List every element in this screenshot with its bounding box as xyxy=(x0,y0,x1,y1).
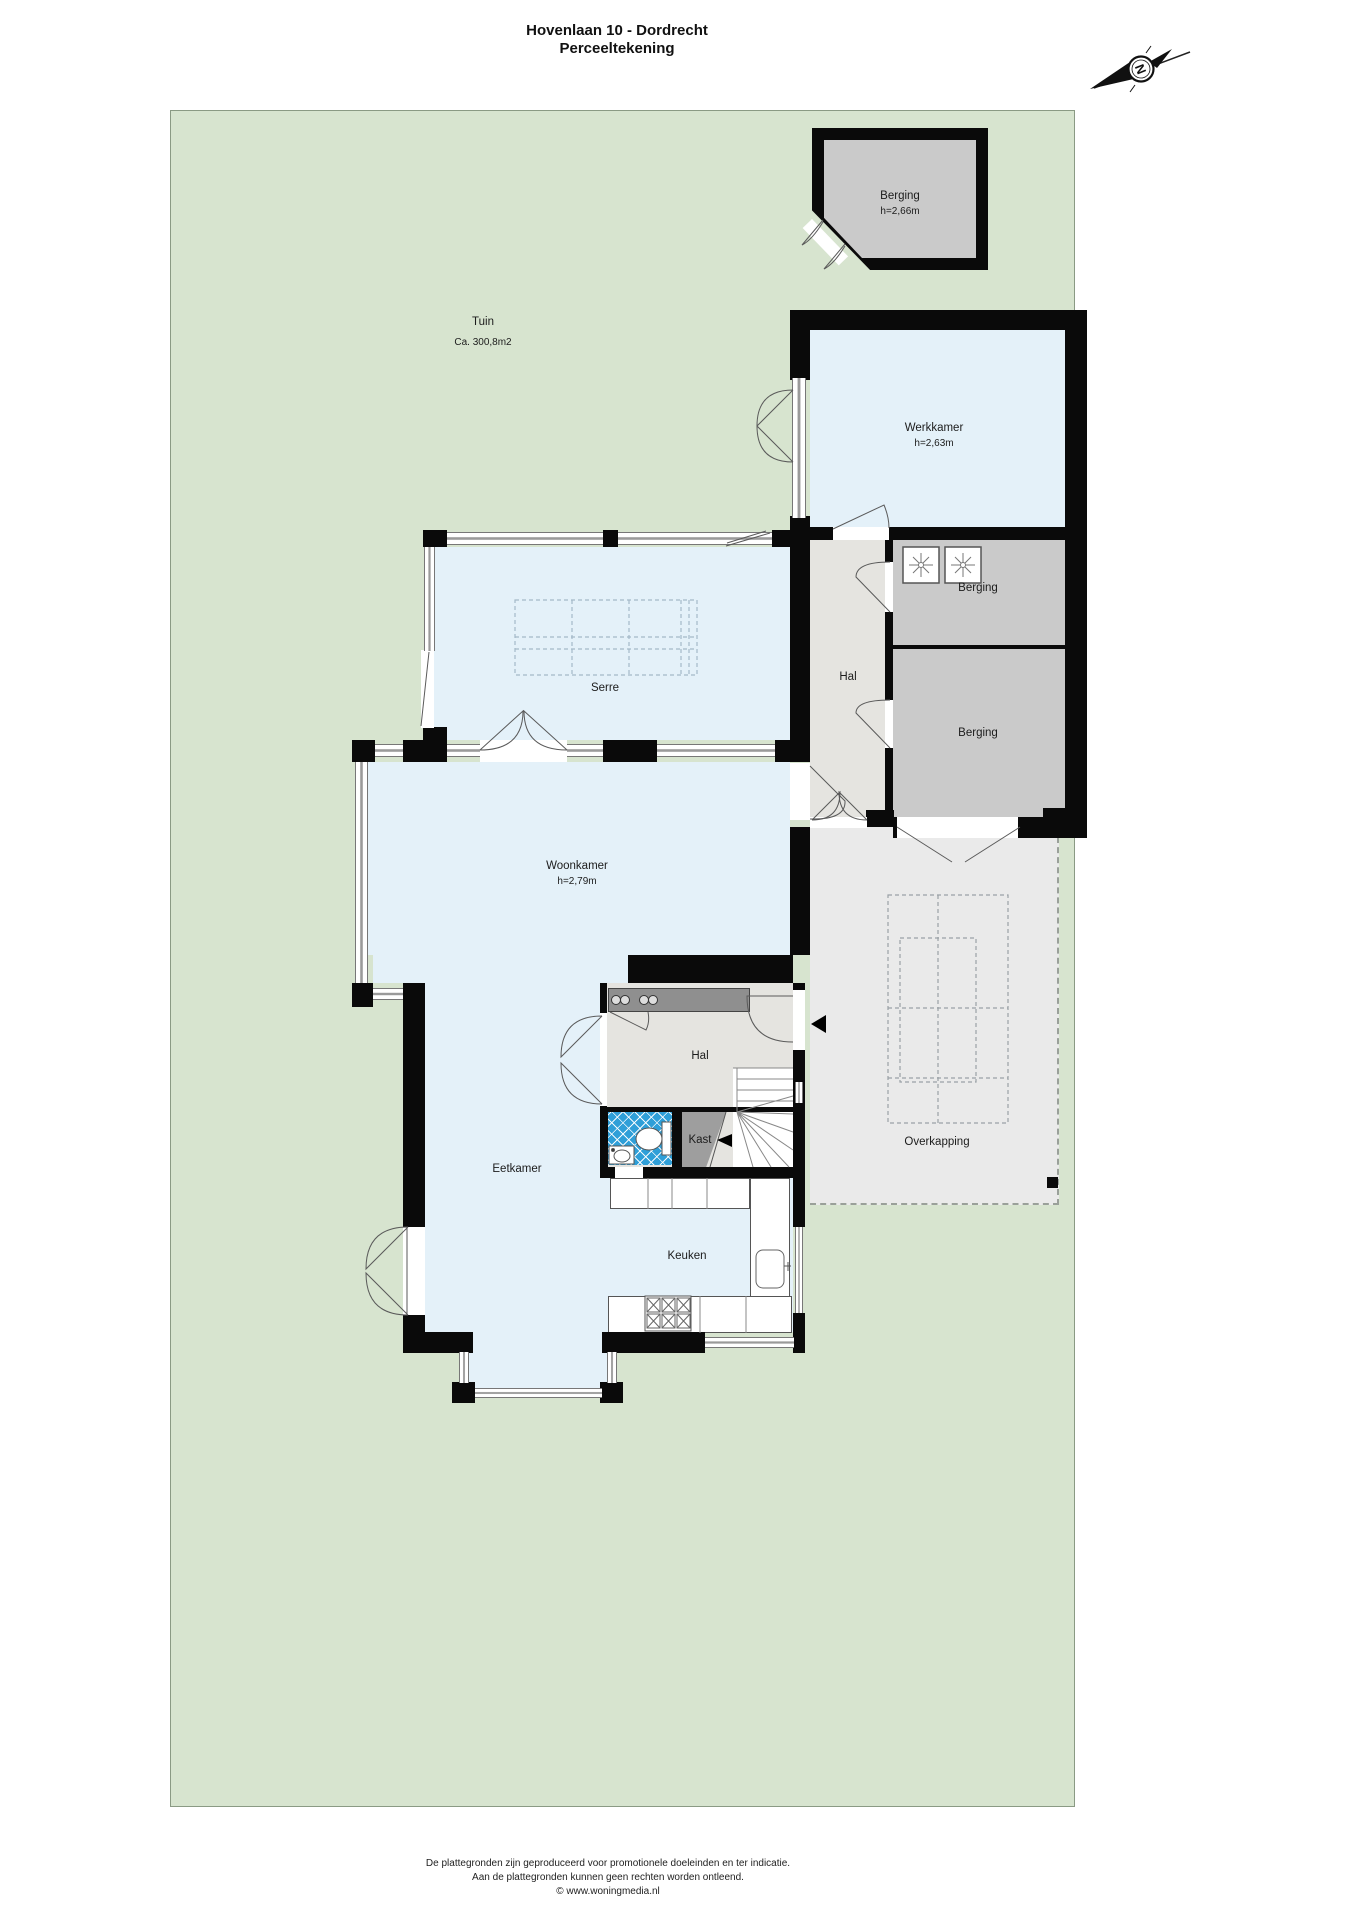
wall-segment xyxy=(790,530,810,762)
wall-segment xyxy=(403,1332,473,1353)
label-woonkamer-h: h=2,79m xyxy=(557,875,596,889)
window xyxy=(475,1388,602,1398)
wall-segment xyxy=(772,530,810,547)
window xyxy=(459,1352,469,1383)
label-eetkamer: Eetkamer xyxy=(492,1162,541,1176)
wall-segment xyxy=(403,983,425,1227)
wall-segment xyxy=(866,810,894,827)
window xyxy=(373,988,403,1000)
wall-segment xyxy=(793,1313,805,1353)
wall-segment xyxy=(628,955,793,983)
wall-segment xyxy=(893,645,1065,649)
window xyxy=(567,744,603,757)
room-woonkamer-ext xyxy=(373,955,628,983)
door-opening xyxy=(885,700,893,748)
door-opening xyxy=(600,1013,607,1106)
wall-segment xyxy=(602,1332,705,1353)
label-kast: Kast xyxy=(688,1133,711,1147)
window xyxy=(447,744,480,757)
overkapping-post xyxy=(1047,1177,1058,1188)
door-opening xyxy=(480,740,567,762)
room-eetkamer-bay xyxy=(466,1353,610,1389)
window xyxy=(618,532,772,545)
wall-segment xyxy=(452,1382,475,1403)
label-werkkamer-h: h=2,63m xyxy=(914,437,953,451)
door-opening xyxy=(790,763,810,820)
window xyxy=(795,1082,803,1103)
label-berging-tuin-h: h=2,66m xyxy=(880,205,919,219)
label-keuken: Keuken xyxy=(667,1249,706,1263)
label-berging-tuin: Berging xyxy=(880,189,920,203)
wall-segment xyxy=(793,1167,805,1227)
door-opening xyxy=(403,1227,425,1315)
window xyxy=(792,378,806,518)
page-subtitle: Perceeltekening xyxy=(559,40,674,57)
label-berging-was: Berging xyxy=(958,581,998,595)
door-opening xyxy=(421,650,434,728)
label-berging-2: Berging xyxy=(958,726,998,740)
compass-letter: N xyxy=(1132,62,1149,76)
label-woonkamer: Woonkamer xyxy=(546,859,608,873)
page-title: Hovenlaan 10 - Dordrecht xyxy=(526,22,708,39)
window xyxy=(607,1352,617,1383)
stairwell xyxy=(733,1068,793,1167)
hall-sideboard xyxy=(608,988,750,1012)
wall-segment xyxy=(1065,310,1087,838)
door-opening xyxy=(793,990,805,1050)
label-overkapping: Overkapping xyxy=(904,1135,969,1149)
wall-segment xyxy=(352,983,373,1007)
wall-segment xyxy=(793,1050,805,1167)
wall-segment xyxy=(423,530,447,547)
wall-segment xyxy=(790,310,1087,330)
kitchen-counter-north xyxy=(610,1178,750,1209)
room-serre xyxy=(433,547,790,740)
window xyxy=(795,1227,803,1313)
footer-disclaimer-2: Aan de plattegronden kunnen geen rechten… xyxy=(472,1871,744,1885)
label-werkkamer: Werkkamer xyxy=(905,421,964,435)
door-opening xyxy=(833,527,889,540)
door-opening xyxy=(897,817,1018,838)
door-opening xyxy=(810,817,867,828)
kitchen-counter-south xyxy=(608,1296,792,1333)
window xyxy=(447,532,603,545)
wall-segment xyxy=(1043,808,1087,838)
compass-icon: N xyxy=(1090,46,1190,92)
wall-segment xyxy=(790,310,810,380)
wall-segment xyxy=(403,740,447,762)
wall-segment xyxy=(600,1107,793,1112)
window xyxy=(424,547,435,651)
footer-disclaimer-1: De plattegronden zijn geproduceerd voor … xyxy=(426,1857,790,1871)
door-opening xyxy=(885,562,893,612)
window xyxy=(705,1337,794,1348)
room-wc xyxy=(608,1112,672,1165)
kitchen-counter-east xyxy=(750,1178,790,1298)
window xyxy=(657,744,775,757)
wall-segment xyxy=(603,740,657,762)
footer-copyright: © www.woningmedia.nl xyxy=(556,1885,660,1899)
label-tuin: Tuin xyxy=(472,315,494,329)
floorplan-page: Hovenlaan 10 - Dordrecht Perceeltekening xyxy=(0,0,1358,1920)
door-opening xyxy=(615,1167,643,1178)
label-serre: Serre xyxy=(591,681,619,695)
label-tuin-area: Ca. 300,8m2 xyxy=(454,336,511,350)
wall-segment xyxy=(352,740,375,762)
window xyxy=(355,762,368,983)
label-hal-achter: Hal xyxy=(839,670,856,684)
wall-segment xyxy=(672,1112,682,1167)
wall-segment xyxy=(775,740,810,762)
wall-segment xyxy=(600,1382,623,1403)
window xyxy=(375,744,403,757)
wall-segment xyxy=(603,530,618,547)
label-hal-entree: Hal xyxy=(691,1049,708,1063)
wall-segment xyxy=(790,827,810,955)
